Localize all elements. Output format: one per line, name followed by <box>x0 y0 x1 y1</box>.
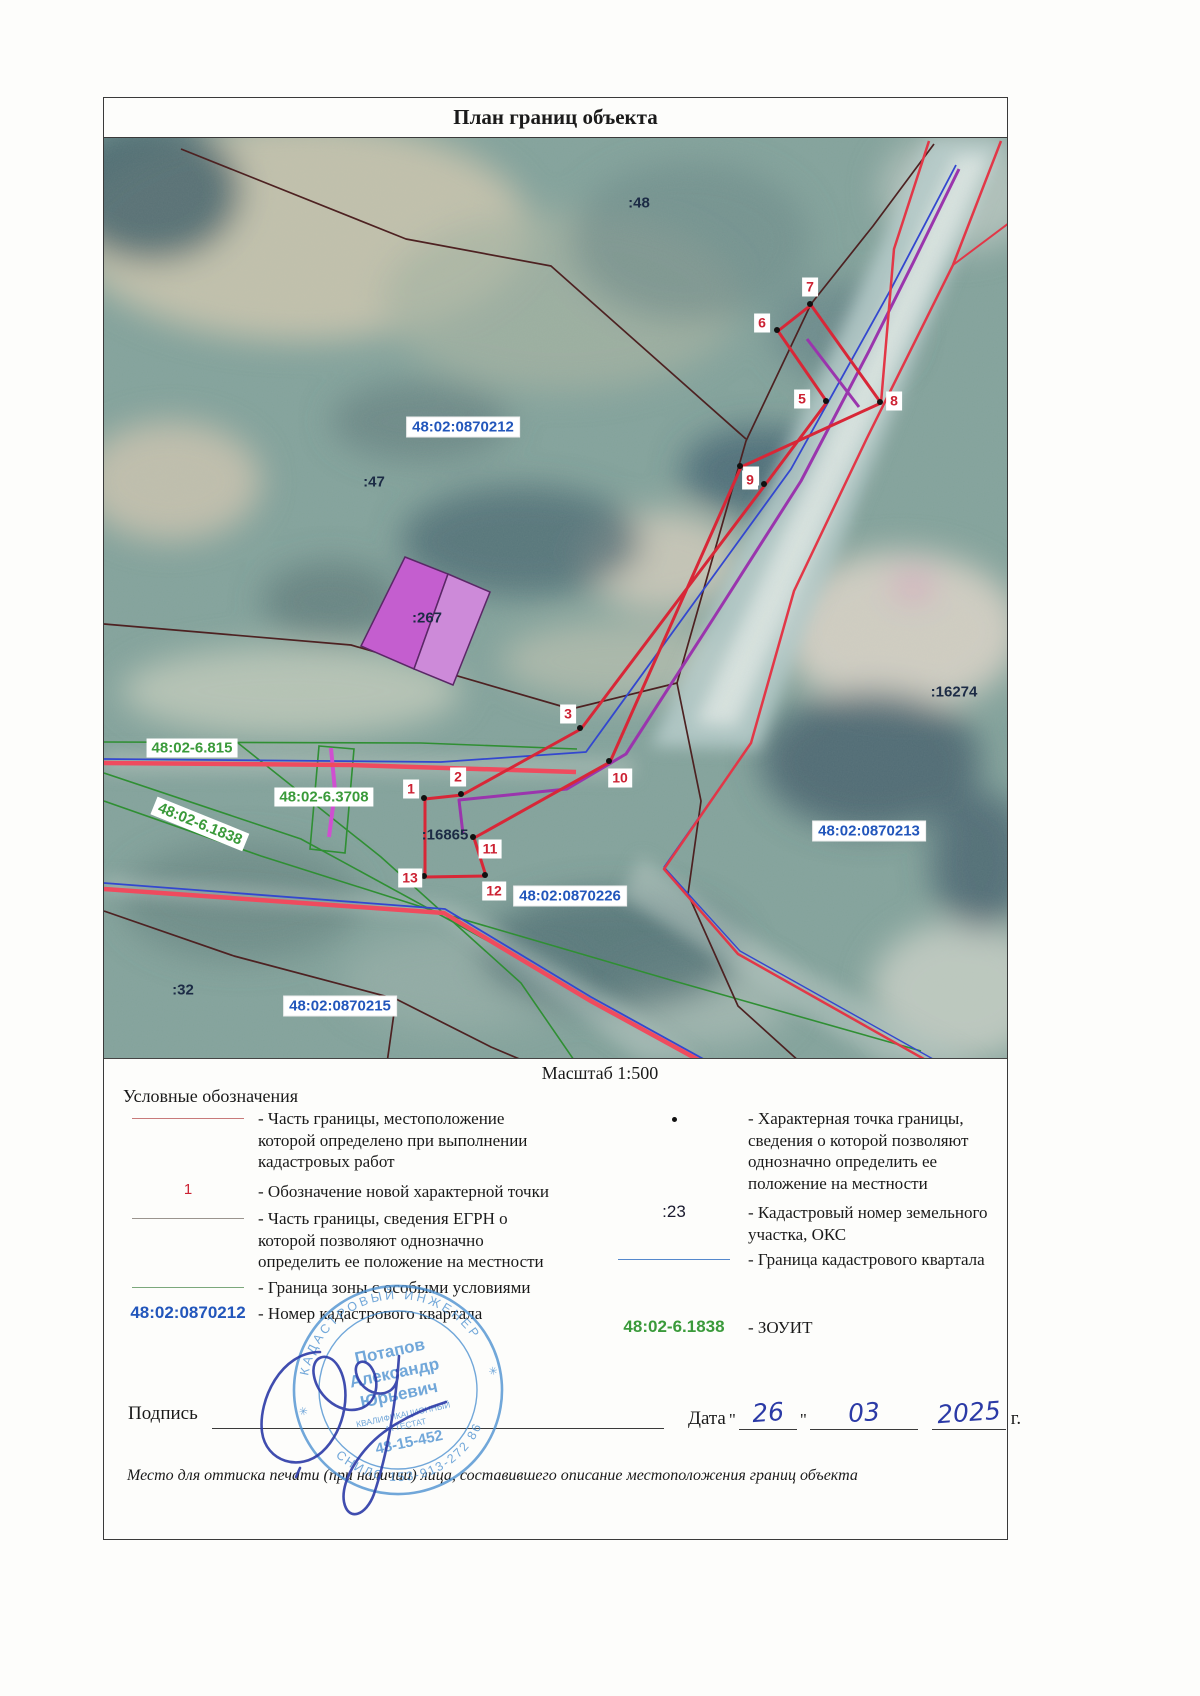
area-label: :48 <box>628 195 650 212</box>
area-label: 48:02:0870215 <box>284 997 396 1016</box>
area-label: :16865 <box>422 827 469 844</box>
boundary-point-dot <box>577 725 583 731</box>
legend-row: 48:02-6.1838- ЗОУИТ <box>600 1317 1008 1339</box>
date-block: Дата " 26 " 03 2025 г. <box>688 1396 1021 1430</box>
map-scale: Масштаб 1:500 <box>0 1063 1200 1084</box>
legend-symbol-zouit-line <box>118 1277 258 1288</box>
signature-label: Подпись <box>128 1403 198 1425</box>
date-suffix: г. <box>1011 1408 1021 1430</box>
legend-row: :23- Кадастровый номер земельного участк… <box>600 1202 1008 1245</box>
point-number-label: 9 <box>742 471 758 490</box>
legend-row: - Характерная точка границы, сведения о … <box>600 1108 1008 1194</box>
date-day-value: 26 <box>751 1397 785 1428</box>
boundary-point-dot <box>737 463 743 469</box>
legend-symbol-egrn-line <box>118 1208 258 1219</box>
legend-text: - Граница кадастрового квартала <box>748 1249 1006 1271</box>
date-close-quote: " <box>800 1410 807 1430</box>
area-label: 48:02-6.3708 <box>274 788 373 807</box>
legend-row: - Часть границы, местоположение которой … <box>118 1108 563 1173</box>
boundary-point-dot <box>421 873 427 879</box>
handwritten-signature <box>230 1290 490 1530</box>
legend-symbol-quarter-line <box>600 1249 748 1260</box>
date-year-value: 2025 <box>936 1396 1001 1429</box>
legend-symbol-zouit-number-glyph: 48:02-6.1838 <box>623 1317 724 1337</box>
page-title: План границ объекта <box>103 97 1008 138</box>
legend-text: - Часть границы, местоположение которой … <box>258 1108 560 1173</box>
legend-text: - Обозначение новой характерной точки <box>258 1181 560 1203</box>
legend-symbol-point-dot <box>600 1108 748 1122</box>
legend-text: - Характерная точка границы, сведения о … <box>748 1108 1006 1194</box>
point-number-label: 12 <box>482 882 506 901</box>
legend-symbol-cadastral-number-glyph: :23 <box>662 1202 686 1222</box>
legend-symbol-red-line-glyph <box>132 1118 244 1119</box>
area-label: 48:02-6.815 <box>147 739 238 758</box>
legend-text: - ЗОУИТ <box>748 1317 1006 1339</box>
legend-row: - Граница кадастрового квартала <box>600 1249 1008 1271</box>
legend-symbol-point-number: 1 <box>118 1181 258 1198</box>
legend-heading: Условные обозначения <box>123 1086 298 1107</box>
area-label: 48:02:0870226 <box>514 887 626 906</box>
legend-text: - Кадастровый номер земельного участка, … <box>748 1202 1006 1245</box>
area-label: :267 <box>412 610 442 627</box>
legend-symbol-quarter-number-glyph: 48:02:0870212 <box>130 1303 245 1323</box>
boundary-point-dot <box>774 327 780 333</box>
legend-row: - Часть границы, сведения ЕГРН о которой… <box>118 1208 563 1273</box>
point-number-label: 6 <box>754 314 770 333</box>
boundary-point-dot <box>421 795 427 801</box>
point-number-label: 13 <box>398 869 422 888</box>
legend-symbol-red-line <box>118 1108 258 1119</box>
date-day-slot: 26 <box>739 1396 797 1430</box>
area-label: :47 <box>363 474 385 491</box>
point-number-label: 1 <box>403 780 419 799</box>
point-number-label: 8 <box>886 392 902 411</box>
date-open-quote: " <box>729 1410 736 1430</box>
boundary-point-dot <box>877 399 883 405</box>
boundary-point-dot <box>823 398 829 404</box>
point-number-label: 11 <box>479 840 502 859</box>
area-label: :16274 <box>931 684 978 701</box>
point-number-label: 3 <box>560 705 576 724</box>
legend-symbol-cadastral-number: :23 <box>600 1202 748 1222</box>
legend-row: 1- Обозначение новой характерной точки <box>118 1181 563 1203</box>
area-label: :32 <box>172 982 194 999</box>
boundary-point-dot <box>761 481 767 487</box>
cadastral-map: :4848:02:0870212:47:267:1627448:02-6.815… <box>104 138 1007 1059</box>
legend-right-column: - Характерная точка границы, сведения о … <box>600 1108 1008 1338</box>
date-year-slot: 2025 <box>932 1396 1006 1430</box>
legend-symbol-point-dot-glyph <box>672 1117 677 1122</box>
boundary-point-dot <box>807 301 813 307</box>
point-number-label: 2 <box>450 768 466 787</box>
legend-symbol-zouit-line-glyph <box>132 1287 244 1288</box>
point-number-label: 5 <box>794 390 810 409</box>
boundary-point-dot <box>470 834 476 840</box>
legend-text: - Часть границы, сведения ЕГРН о которой… <box>258 1208 560 1273</box>
point-number-label: 7 <box>802 278 818 297</box>
area-label: 48:02:0870213 <box>813 822 925 841</box>
area-label: 48:02:0870212 <box>407 418 519 437</box>
legend-symbol-point-number-glyph: 1 <box>184 1181 192 1198</box>
legend-symbol-quarter-line-glyph <box>618 1259 730 1260</box>
date-label: Дата <box>688 1408 726 1430</box>
aerial-photo <box>104 138 1007 1059</box>
date-month-value: 03 <box>847 1397 881 1428</box>
boundary-point-dot <box>606 758 612 764</box>
boundary-point-dot <box>458 791 464 797</box>
boundary-point-dot <box>482 872 488 878</box>
legend-symbol-zouit-number: 48:02-6.1838 <box>600 1317 748 1337</box>
point-number-label: 10 <box>608 769 632 788</box>
date-month-slot: 03 <box>810 1396 918 1430</box>
legend-symbol-egrn-line-glyph <box>132 1218 244 1219</box>
